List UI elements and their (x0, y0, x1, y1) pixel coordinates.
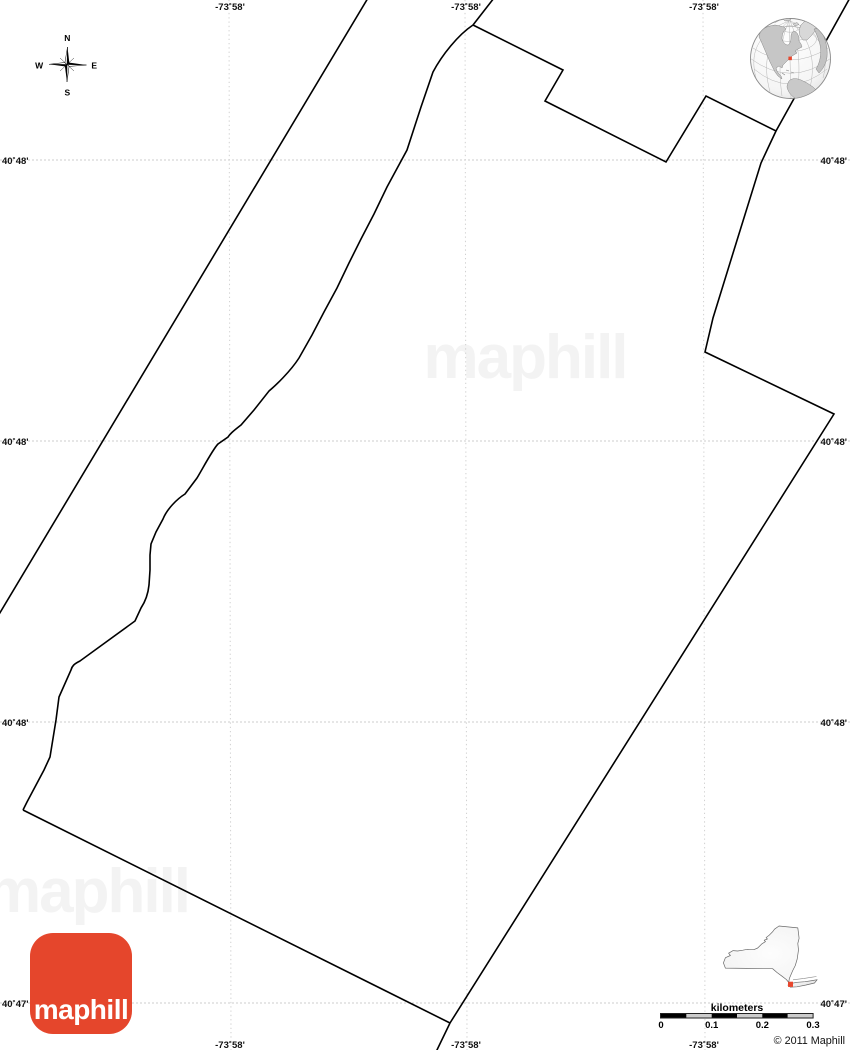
svg-text:-73˚58': -73˚58' (689, 1040, 719, 1050)
svg-text:N: N (64, 33, 70, 43)
svg-text:40˚47': 40˚47' (2, 999, 29, 1010)
svg-text:40˚48': 40˚48' (2, 718, 29, 729)
svg-text:0: 0 (658, 1020, 663, 1031)
svg-text:0.1: 0.1 (705, 1020, 719, 1031)
svg-text:-73˚58': -73˚58' (451, 2, 481, 13)
svg-text:-73˚58': -73˚58' (689, 2, 719, 13)
svg-text:40˚48': 40˚48' (820, 437, 847, 448)
svg-text:maphill: maphill (423, 323, 626, 392)
svg-text:E: E (91, 61, 97, 71)
svg-text:40˚48': 40˚48' (2, 437, 29, 448)
svg-text:-73˚58': -73˚58' (215, 1040, 245, 1050)
svg-text:40˚48': 40˚48' (2, 156, 29, 167)
svg-text:0.2: 0.2 (756, 1020, 769, 1031)
svg-text:40˚47': 40˚47' (820, 999, 847, 1010)
svg-text:© 2011 Maphill: © 2011 Maphill (774, 1035, 845, 1047)
svg-text:W: W (35, 60, 44, 70)
svg-text:-73˚58': -73˚58' (215, 2, 245, 13)
svg-text:S: S (64, 88, 70, 98)
svg-text:0.3: 0.3 (806, 1020, 819, 1031)
svg-text:-73˚58': -73˚58' (451, 1040, 481, 1050)
svg-text:40˚48': 40˚48' (820, 718, 847, 729)
svg-text:40˚48': 40˚48' (820, 156, 847, 167)
svg-text:maphill: maphill (0, 857, 189, 926)
svg-text:kilometers: kilometers (711, 1002, 764, 1014)
